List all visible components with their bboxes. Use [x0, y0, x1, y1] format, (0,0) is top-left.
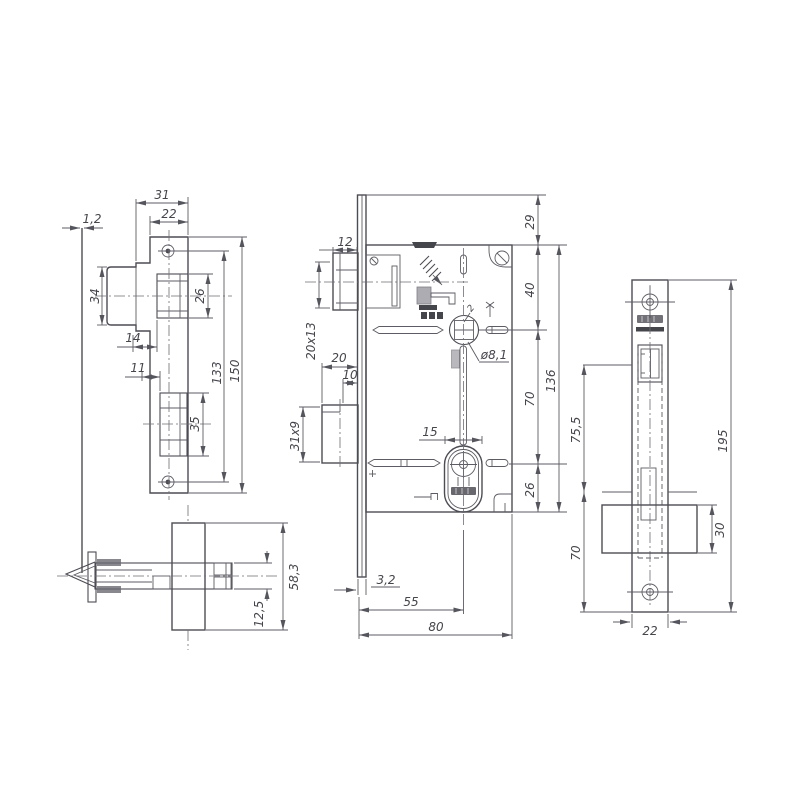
small-bracket	[414, 494, 438, 501]
flag-marker	[486, 302, 494, 317]
dim-cylinder-width: 15	[422, 425, 437, 439]
side-tab	[452, 350, 460, 368]
spring-retainer-top	[97, 559, 121, 566]
dim-bolt-extended: 20	[331, 351, 347, 365]
case-corner-notch	[494, 494, 512, 512]
case-screw-top	[495, 251, 509, 265]
deadbolt-tail	[641, 468, 656, 520]
case-top-tab	[412, 242, 437, 248]
dim-faceplate-upper: 75,5	[569, 417, 583, 444]
dim-strike-total-height: 150	[228, 359, 242, 382]
dim-faceplate-width: 22	[642, 624, 657, 638]
dim-body-upper: 40	[523, 282, 537, 298]
dim-strike-hole-spacing: 133	[210, 362, 224, 385]
latch-bolt-section-view: 58,3 12,5	[57, 505, 301, 650]
spindle-follower-hub	[450, 316, 479, 345]
lever-mechanism	[417, 287, 455, 319]
deadbolt-thrown	[602, 505, 697, 553]
latch-bevel-tip	[66, 562, 95, 587]
deadbolt	[322, 399, 358, 467]
dim-strike-box-height: 34	[88, 288, 102, 303]
technical-drawing-canvas: 1,2	[0, 0, 800, 800]
strike-plate-front-view: 1,2	[62, 188, 247, 573]
lock-case	[366, 245, 512, 512]
dim-body-mid: 70	[523, 391, 537, 407]
spring-retainer-bottom	[97, 586, 121, 593]
dim-strike-outer-width: 31	[154, 188, 169, 202]
dim-body-top: 29	[523, 214, 537, 229]
lock-body-side-view: 2 12 20x13 20 10 31x9 15	[288, 195, 567, 639]
door-edge-block	[172, 523, 205, 630]
dim-latch-section: 20x13	[304, 322, 318, 360]
strike-plate-outline	[107, 237, 188, 493]
dim-strike-bolt-opening-height: 35	[188, 416, 202, 431]
spring	[420, 256, 442, 285]
dim-faceplate-total-height: 195	[716, 430, 730, 453]
latch-tail	[366, 255, 400, 308]
slot-cylinder-right	[486, 460, 508, 467]
dim-case-depth: 80	[428, 620, 444, 634]
dim-deadbolt-height: 30	[713, 522, 727, 538]
dim-latch-bolt-height: 12,5	[252, 601, 266, 628]
dim-spindle-hole: ø8,1	[480, 348, 507, 362]
dim-latch-block-height: 58,3	[287, 564, 301, 591]
dim-strike-latch-offset: 14	[125, 331, 140, 345]
dim-bolt-section: 31x9	[288, 421, 302, 451]
strike-bolt-opening	[160, 393, 187, 456]
dim-strike-bolt-offset: 11	[130, 361, 145, 375]
faceplate-front-view: 75,5 70 30 195 22	[569, 280, 737, 638]
dim-latch-projection: 12	[337, 235, 352, 249]
dim-backset: 55	[403, 595, 418, 609]
dim-strike-inner-width: 22	[161, 207, 176, 221]
dim-faceplate-thickness: 3,2	[376, 573, 395, 587]
dim-case-height: 136	[544, 369, 558, 392]
slot-cylinder-left	[368, 460, 440, 467]
dim-body-lower: 26	[523, 482, 537, 498]
slot-follower-left	[373, 327, 443, 334]
latch-bolt	[333, 253, 358, 310]
dim-strike-latch-opening-height: 26	[193, 288, 207, 304]
dim-bolt-projection: 10	[342, 368, 358, 382]
dim-small-2: 2	[466, 303, 478, 314]
dim-strike-thickness: 1,2	[82, 212, 101, 226]
small-cross-marker	[369, 470, 376, 477]
lock-technical-drawing: 1,2	[0, 0, 800, 800]
dim-faceplate-lower: 70	[569, 545, 583, 561]
